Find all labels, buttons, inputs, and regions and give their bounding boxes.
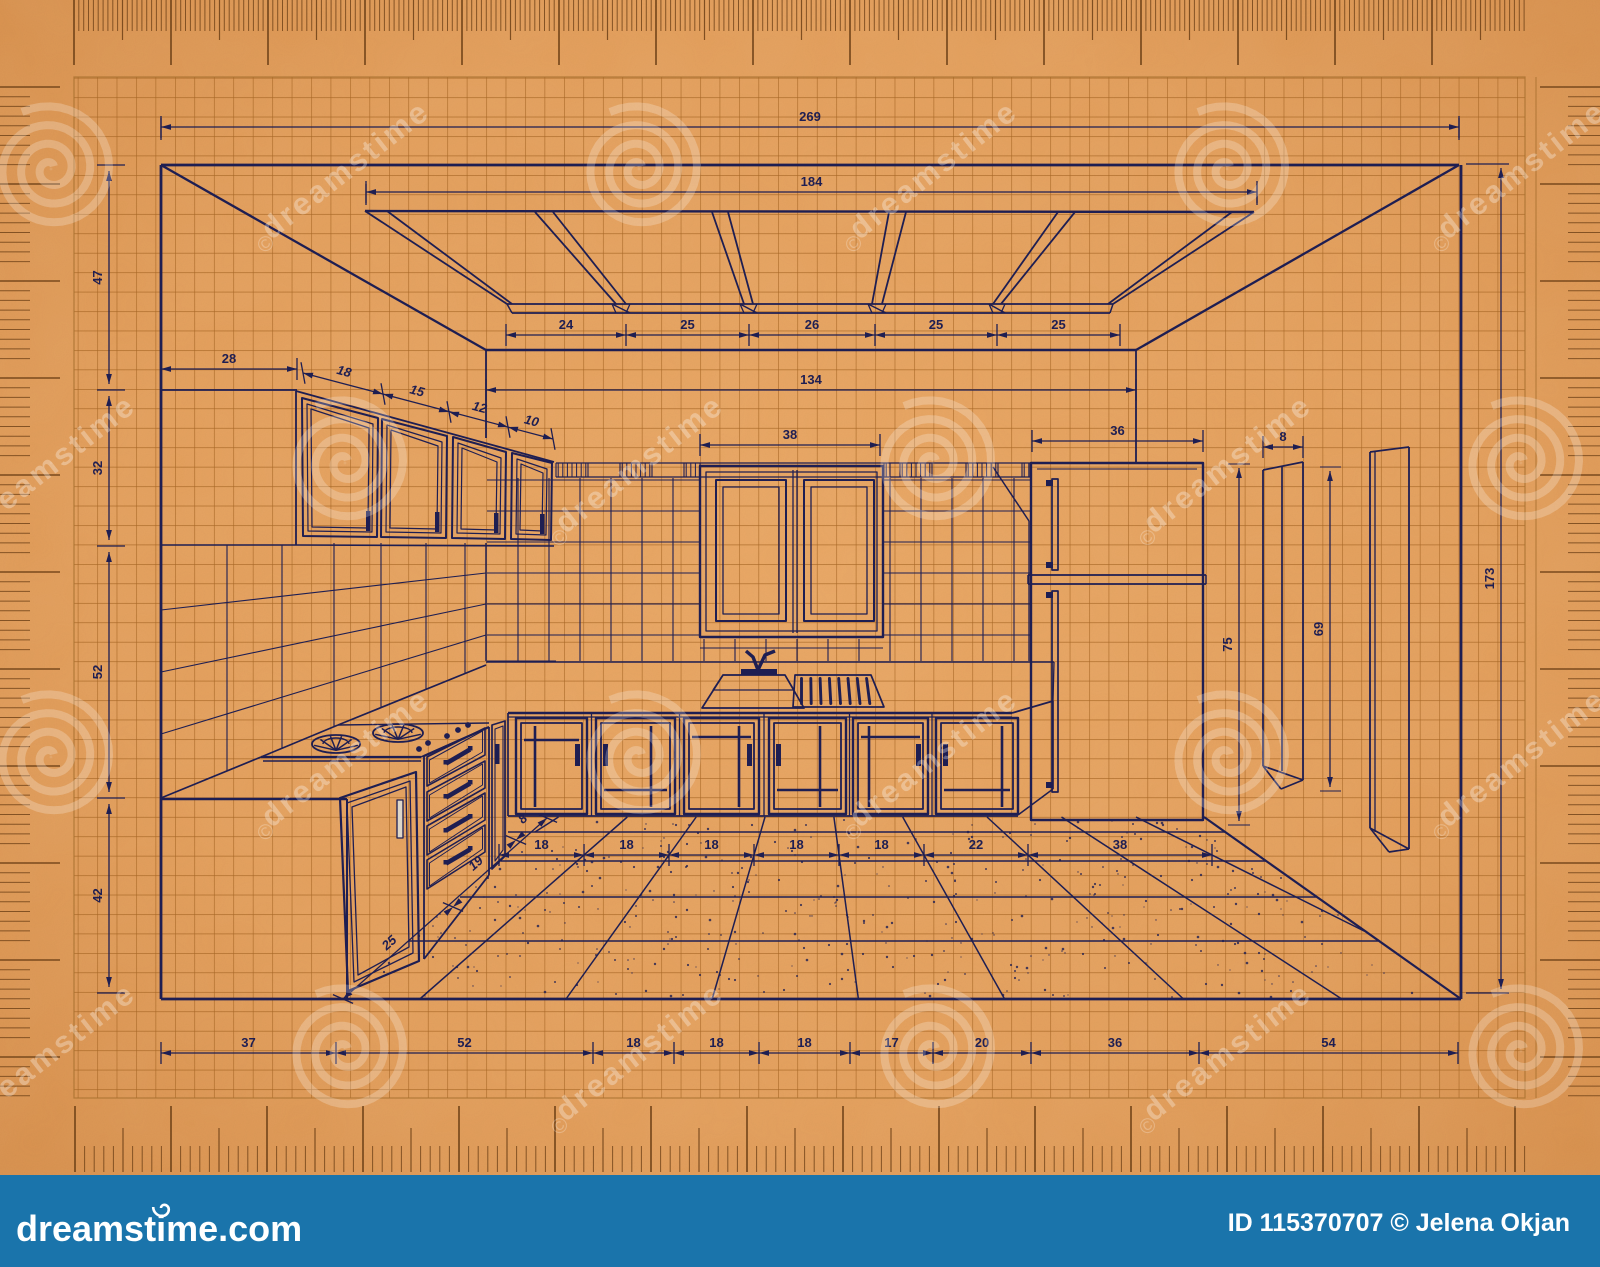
svg-text:ID 115370707 © Jelena Okjan: ID 115370707 © Jelena Okjan xyxy=(1228,1209,1570,1237)
